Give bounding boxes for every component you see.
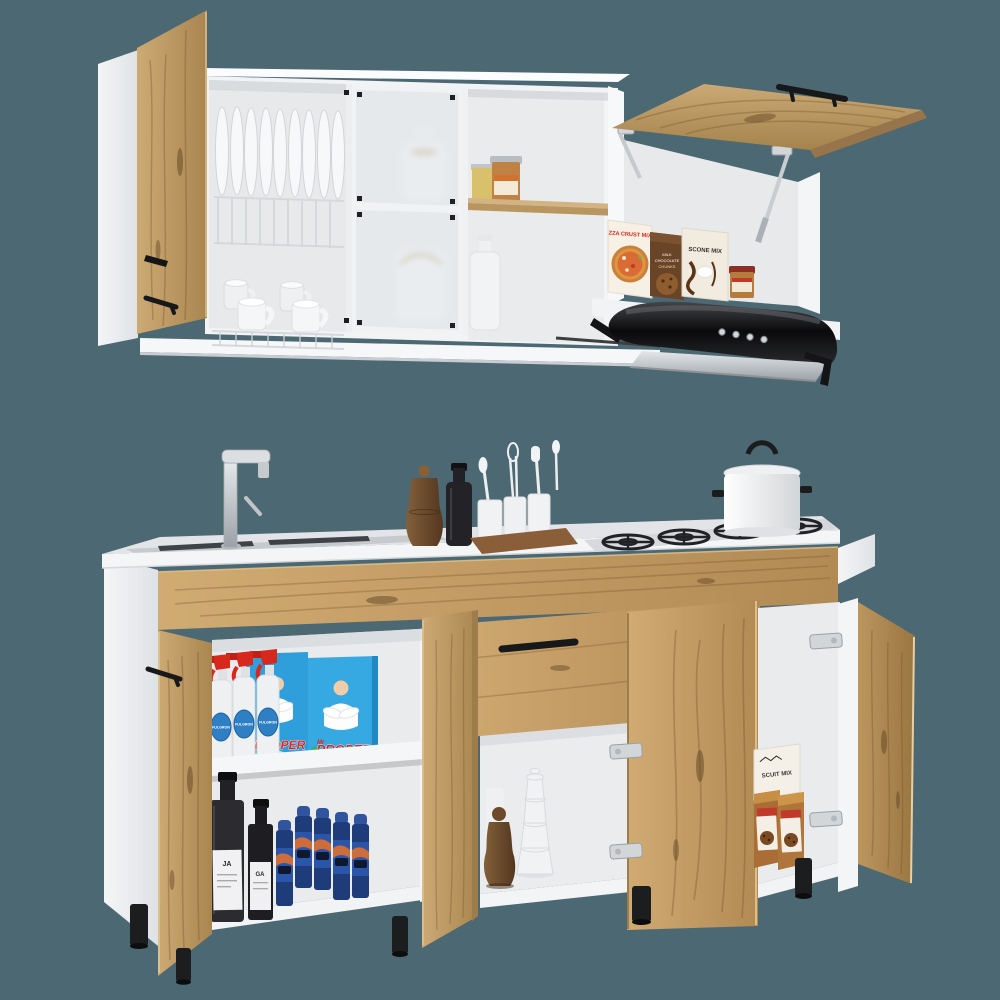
plate: [260, 108, 273, 196]
middle-left-door-panel: [422, 610, 478, 948]
product-photo-kitchen-set: ZZA CRUST MIX MILK CHOCOLATE CHUNKS: [0, 0, 1000, 1000]
door-hinge: [610, 843, 643, 859]
door-hinge: [810, 811, 843, 827]
utensil-crock: [528, 494, 550, 532]
foot: [795, 858, 812, 899]
wood-knot: [697, 578, 715, 584]
wood-knot: [881, 730, 887, 754]
faucet-spout: [258, 462, 269, 478]
chocolate-chunk-bag: [754, 790, 780, 868]
hinge-plate-dot: [344, 318, 349, 323]
small-jar: [729, 266, 755, 298]
pot-body: [724, 474, 800, 532]
kitchen-set-illustration: ZZA CRUST MIX MILK CHOCOLATE CHUNKS: [0, 0, 1000, 1000]
faucet-arm: [222, 450, 270, 463]
spray-label: FULGRON: [235, 723, 253, 727]
plate: [289, 109, 302, 197]
spray-label: FULGRON: [212, 726, 230, 730]
choc-box-line2: CHOCOLATE: [655, 258, 680, 263]
middle-cabinet: [422, 600, 760, 948]
wood-knot: [673, 839, 679, 861]
lift-interior-right-wall: [798, 172, 820, 314]
aerosol-can: [314, 808, 331, 890]
jam-jar-back: [471, 164, 493, 202]
door-edge-dark: [472, 610, 478, 921]
faucet-riser: [224, 463, 237, 547]
mascot-head: [334, 681, 349, 696]
aerosol-can: [276, 820, 293, 906]
aerosol-can: [295, 806, 312, 888]
section-divider: [462, 88, 468, 336]
foot: [130, 904, 148, 949]
wall-left-door-panel: [137, 10, 207, 334]
left-door-panel: [158, 630, 212, 976]
aerosol-can: [352, 814, 369, 898]
wall-cabinet-left-side-panel: [98, 50, 138, 346]
dish-rack-section: [209, 80, 346, 349]
wood-knot: [156, 240, 161, 260]
plate: [231, 107, 244, 195]
frosted-glass-doors: [352, 85, 462, 334]
plate: [245, 108, 258, 196]
wood-knot: [177, 148, 183, 176]
utensil-crock: [504, 497, 526, 535]
cookie-image: [760, 831, 774, 845]
right-door-open: [858, 602, 915, 884]
chocolate-chunks-box: MILK CHOCOLATE CHUNKS: [650, 232, 684, 300]
pot-side-handle: [712, 490, 724, 497]
door-hinge: [610, 743, 643, 759]
middle-left-door-open: [422, 610, 478, 948]
plate-row: [216, 107, 345, 199]
scone-mix-box: SCONE MIX: [682, 228, 728, 301]
foot: [392, 916, 408, 957]
pizza-crust-mix-box: ZZA CRUST MIX: [608, 220, 652, 298]
choc-box-line3: CHUNKS: [659, 264, 676, 269]
utensil-crock: [478, 500, 502, 538]
plate: [274, 109, 287, 197]
middle-right-door-panel: [627, 600, 758, 930]
frosted-pane-top: [356, 90, 458, 206]
choc-box-line1: MILK: [662, 252, 672, 257]
wood-knot: [170, 870, 175, 890]
section-divider: [346, 84, 352, 332]
pot-side-handle: [800, 486, 812, 493]
plate: [303, 110, 316, 198]
foot: [176, 948, 191, 985]
spray-label: FULGRON: [259, 721, 277, 725]
base-left-side-panel: [104, 556, 158, 946]
wood-knot: [187, 766, 193, 794]
middle-right-door-open: [627, 600, 758, 930]
aerosol-can: [333, 812, 350, 900]
cookie-image: [656, 273, 678, 295]
frosted-pane-bottom: [356, 210, 458, 330]
plate: [318, 110, 331, 198]
plate: [216, 107, 229, 195]
jam-jar-front: [490, 156, 522, 203]
pot-bottom: [724, 527, 800, 537]
wall-left-door: [137, 10, 207, 334]
door-hinge: [810, 633, 843, 649]
wood-knot: [696, 750, 704, 782]
foot: [632, 886, 651, 925]
left-cabinet: Mr PROPER Mr PROPER: [203, 628, 436, 930]
wood-knot: [550, 665, 570, 671]
plate: [332, 111, 345, 199]
hinge-plate-dot: [344, 90, 349, 95]
cookie-image: [784, 833, 798, 847]
right-cabinet: SCUIT MIX: [754, 598, 915, 898]
bottle-label: JA: [223, 861, 232, 868]
wood-knot: [896, 791, 900, 809]
bottle-label: GA: [256, 872, 266, 878]
